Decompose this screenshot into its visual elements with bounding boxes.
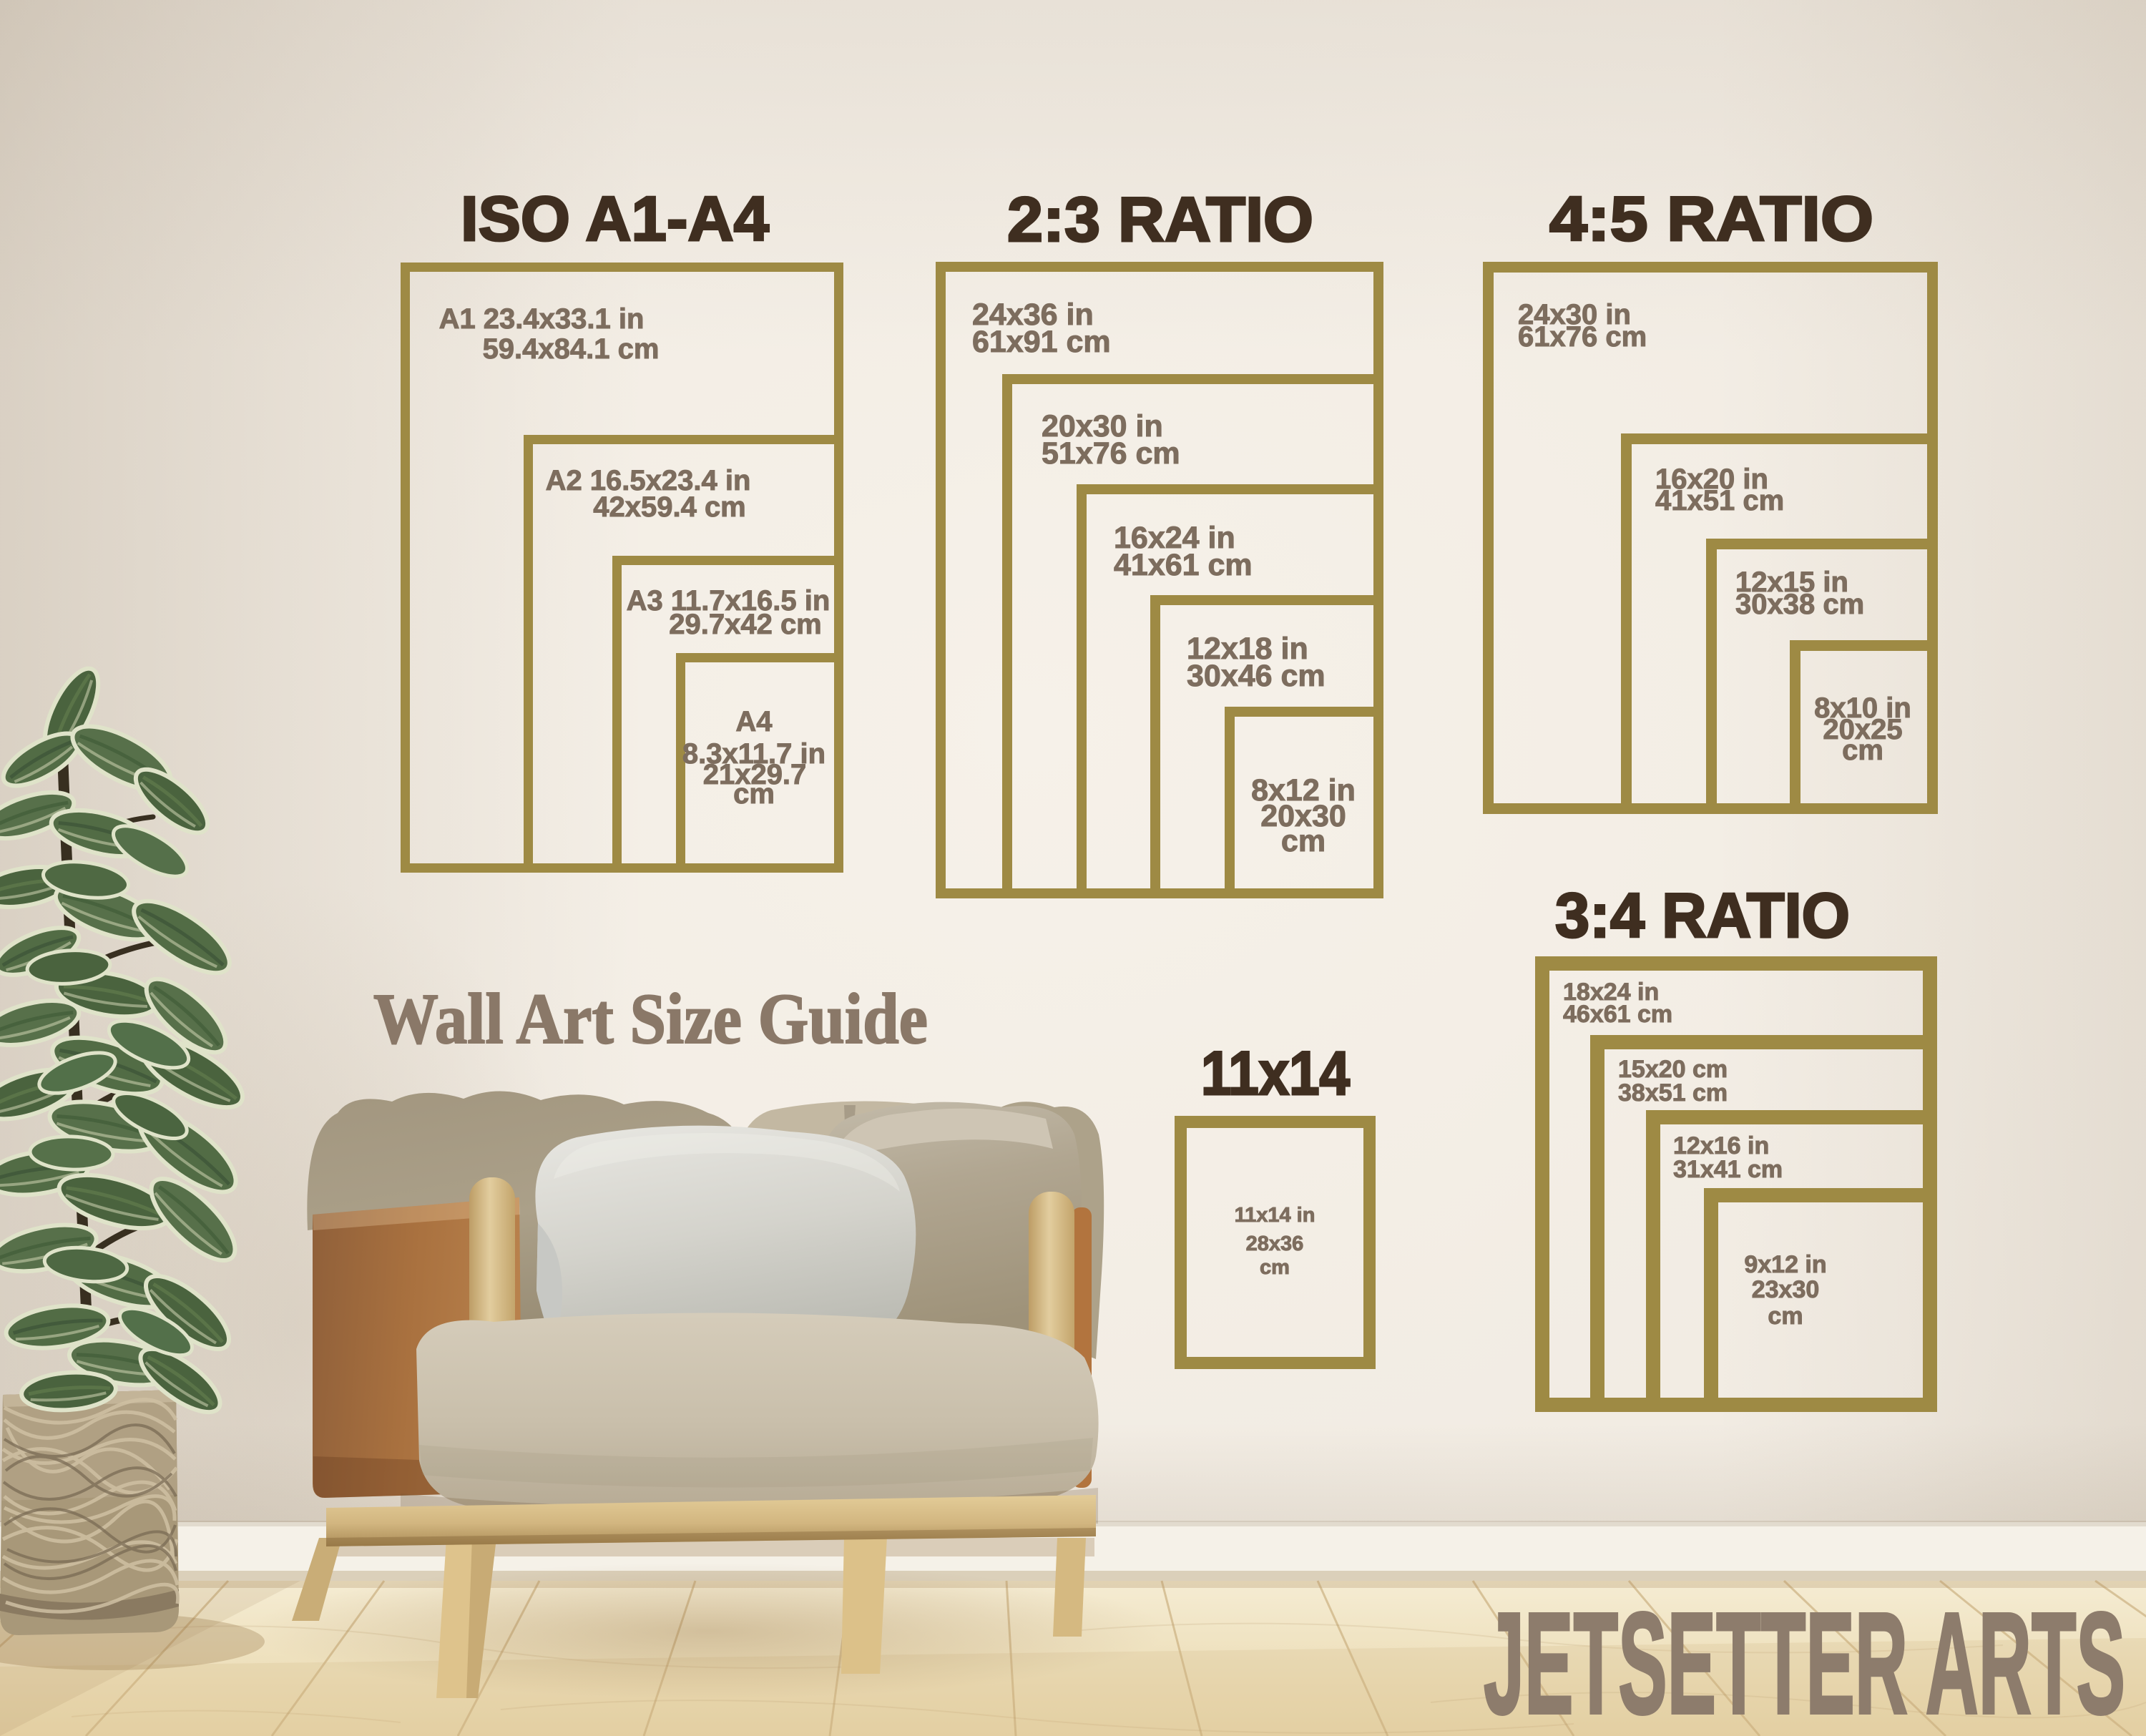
svg-text:9x12 in: 9x12 in (1744, 1251, 1826, 1278)
svg-text:cm: cm (1768, 1303, 1803, 1330)
svg-text:cm: cm (733, 778, 775, 810)
svg-text:2:3 RATIO: 2:3 RATIO (1007, 184, 1313, 255)
svg-text:41x61 cm: 41x61 cm (1114, 548, 1253, 582)
svg-text:29.7x42 cm: 29.7x42 cm (669, 609, 822, 640)
svg-text:11x14: 11x14 (1201, 1039, 1350, 1108)
svg-text:38x51 cm: 38x51 cm (1618, 1079, 1728, 1107)
svg-text:30x46 cm: 30x46 cm (1187, 659, 1326, 693)
svg-text:28x36: 28x36 (1246, 1232, 1304, 1255)
svg-text:4:5 RATIO: 4:5 RATIO (1549, 183, 1873, 254)
svg-text:A4: A4 (735, 706, 773, 737)
svg-text:A1 23.4x33.1 in: A1 23.4x33.1 in (439, 303, 645, 335)
svg-text:42x59.4 cm: 42x59.4 cm (593, 491, 746, 523)
svg-text:31x41 cm: 31x41 cm (1673, 1156, 1783, 1183)
svg-text:ISO A1-A4: ISO A1-A4 (461, 183, 769, 254)
svg-text:3:4 RATIO: 3:4 RATIO (1555, 880, 1850, 951)
svg-text:30x38 cm: 30x38 cm (1735, 589, 1864, 620)
svg-text:11x14 in: 11x14 in (1235, 1204, 1315, 1227)
svg-text:46x61 cm: 46x61 cm (1563, 1001, 1672, 1028)
svg-text:cm: cm (1842, 735, 1883, 766)
svg-text:41x51 cm: 41x51 cm (1655, 485, 1784, 516)
svg-text:59.4x84.1 cm: 59.4x84.1 cm (483, 333, 660, 365)
svg-text:23x30: 23x30 (1752, 1276, 1820, 1303)
svg-text:61x76 cm: 61x76 cm (1518, 321, 1647, 353)
svg-text:Wall Art Size Guide: Wall Art Size Guide (373, 979, 928, 1059)
svg-text:JETSETTER ARTS: JETSETTER ARTS (1484, 1582, 2125, 1736)
svg-text:61x91 cm: 61x91 cm (972, 325, 1111, 359)
svg-text:cm: cm (1260, 1256, 1290, 1279)
svg-text:cm: cm (1281, 824, 1326, 858)
svg-text:51x76 cm: 51x76 cm (1042, 436, 1180, 471)
